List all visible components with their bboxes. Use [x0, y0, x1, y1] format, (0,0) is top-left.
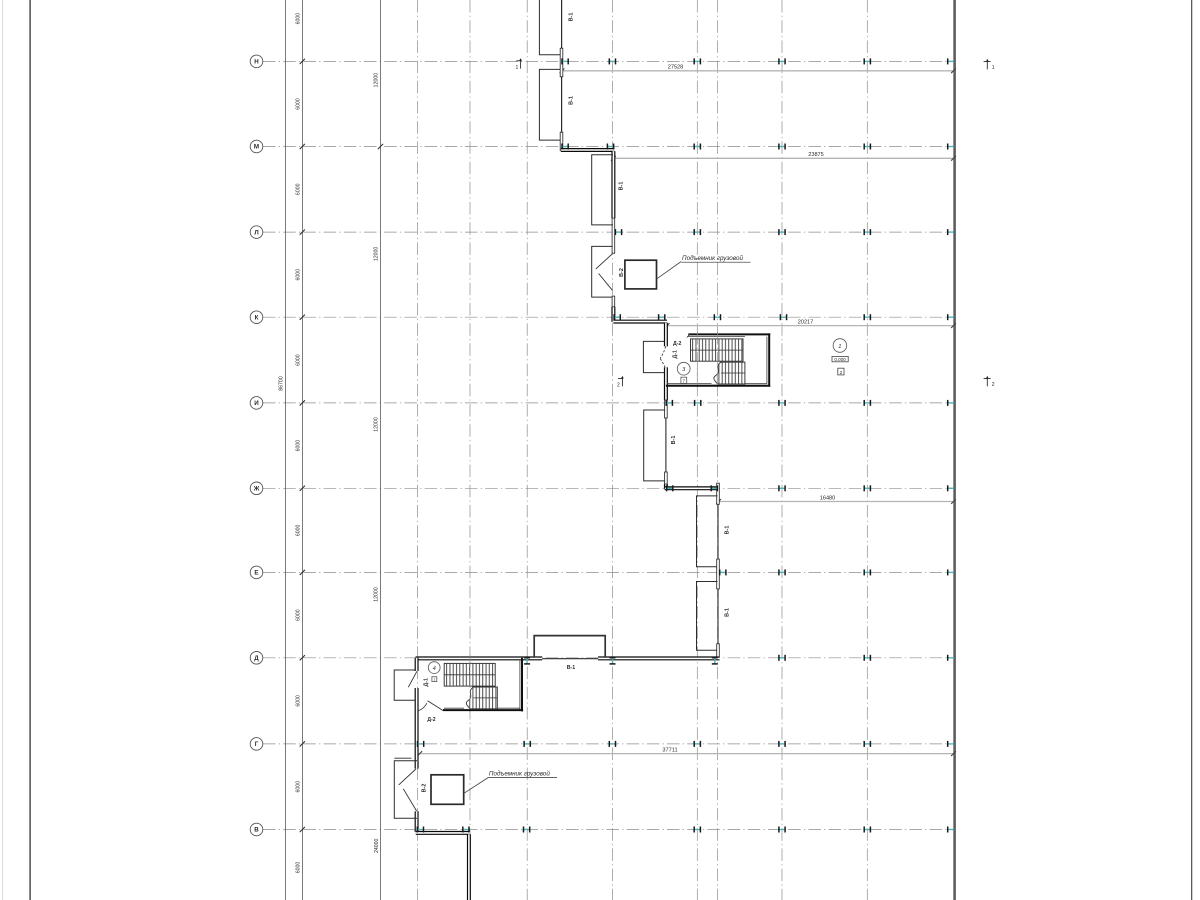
svg-text:6000: 6000 — [295, 781, 301, 793]
svg-text:В-1: В-1 — [725, 608, 731, 617]
svg-text:27528: 27528 — [668, 65, 684, 71]
svg-text:Д-1: Д-1 — [424, 678, 430, 686]
svg-text:86700: 86700 — [279, 376, 285, 391]
svg-text:12000: 12000 — [374, 417, 380, 432]
svg-text:1: 1 — [516, 65, 519, 71]
svg-text:И: И — [254, 400, 259, 407]
svg-text:6000: 6000 — [295, 269, 301, 281]
svg-text:0.000: 0.000 — [834, 357, 846, 362]
svg-text:Ж: Ж — [253, 486, 260, 493]
svg-text:6000: 6000 — [295, 98, 301, 110]
svg-text:2: 2 — [992, 382, 995, 388]
svg-text:Г: Г — [255, 741, 259, 748]
svg-text:6000: 6000 — [295, 695, 301, 707]
svg-text:7: 7 — [683, 378, 686, 383]
svg-text:В-1: В-1 — [568, 13, 574, 22]
svg-text:24000: 24000 — [374, 838, 380, 853]
svg-text:1: 1 — [992, 65, 995, 71]
svg-text:Н: Н — [254, 59, 259, 66]
svg-text:37711: 37711 — [662, 747, 677, 753]
svg-text:7: 7 — [433, 677, 436, 682]
svg-text:Подъемник грузовой: Подъемник грузовой — [489, 770, 550, 778]
svg-text:В-1: В-1 — [725, 526, 731, 535]
svg-text:12000: 12000 — [374, 587, 380, 602]
svg-text:12000: 12000 — [374, 247, 380, 262]
svg-text:6000: 6000 — [295, 525, 301, 537]
svg-text:В-1: В-1 — [568, 96, 574, 105]
svg-text:2: 2 — [617, 383, 620, 389]
svg-text:Е: Е — [254, 570, 258, 577]
svg-text:6000: 6000 — [295, 354, 301, 366]
svg-text:16480: 16480 — [820, 495, 836, 501]
svg-text:Д-2: Д-2 — [427, 717, 435, 723]
svg-text:В-1: В-1 — [671, 436, 677, 445]
svg-text:Д-2: Д-2 — [673, 341, 681, 347]
svg-text:3: 3 — [682, 367, 686, 373]
svg-text:6000: 6000 — [295, 13, 301, 25]
svg-text:В-2: В-2 — [422, 784, 428, 793]
svg-text:23875: 23875 — [808, 152, 824, 158]
svg-text:Д: Д — [254, 655, 259, 662]
svg-text:1: 1 — [838, 344, 841, 350]
svg-text:Подъемник грузовой: Подъемник грузовой — [682, 254, 743, 262]
svg-text:В-1: В-1 — [618, 182, 624, 191]
svg-text:4: 4 — [433, 666, 436, 672]
svg-text:К: К — [255, 314, 259, 321]
svg-text:6000: 6000 — [295, 609, 301, 621]
svg-text:6000: 6000 — [295, 862, 301, 874]
svg-text:Л: Л — [254, 229, 258, 236]
svg-text:В-1: В-1 — [567, 665, 576, 671]
svg-text:6000: 6000 — [295, 440, 301, 452]
svg-text:М: М — [254, 144, 259, 151]
svg-text:12000: 12000 — [374, 73, 380, 88]
svg-text:Д-1: Д-1 — [672, 350, 678, 358]
svg-text:В: В — [254, 827, 259, 834]
svg-text:20217: 20217 — [798, 319, 814, 325]
svg-text:2: 2 — [840, 370, 843, 376]
svg-text:6000: 6000 — [295, 183, 301, 195]
